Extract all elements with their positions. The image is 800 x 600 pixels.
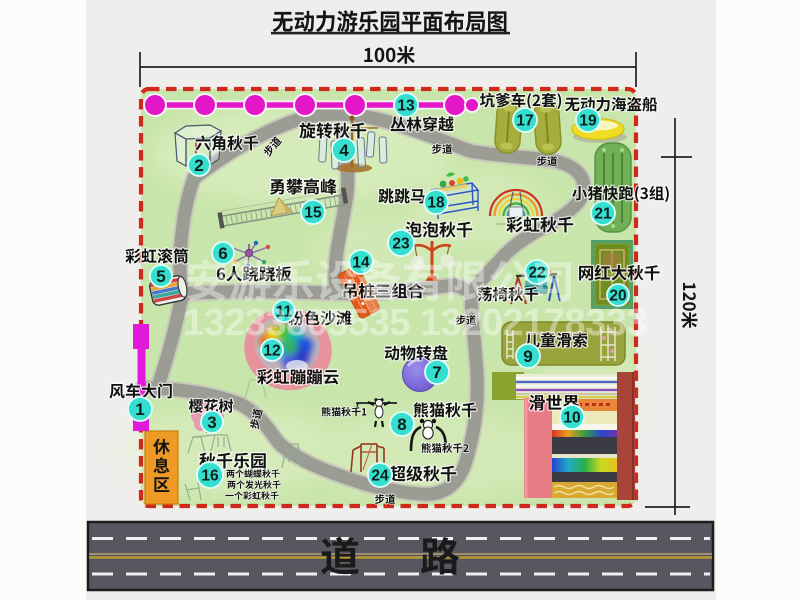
svg-text:23: 23 (392, 236, 410, 253)
svg-text:8: 8 (397, 415, 406, 434)
svg-text:21: 21 (594, 206, 612, 223)
svg-text:1: 1 (135, 400, 144, 419)
svg-text:7: 7 (432, 363, 441, 382)
svg-text:13: 13 (397, 98, 415, 115)
svg-text:10: 10 (563, 410, 580, 427)
svg-text:17: 17 (516, 113, 533, 130)
svg-text:6: 6 (218, 244, 227, 263)
svg-text:24: 24 (371, 468, 389, 485)
svg-text:3: 3 (207, 413, 216, 432)
svg-text:13233805535 13202178333: 13233805535 13202178333 (183, 302, 647, 344)
svg-text:18: 18 (427, 195, 445, 212)
svg-text:9: 9 (523, 347, 532, 366)
svg-text:15: 15 (304, 205, 322, 222)
svg-text:12: 12 (263, 343, 280, 360)
svg-text:16: 16 (201, 468, 219, 485)
svg-text:4: 4 (339, 141, 349, 160)
svg-text:19: 19 (579, 113, 597, 130)
svg-text:2: 2 (194, 156, 203, 175)
svg-text:5: 5 (156, 267, 165, 286)
